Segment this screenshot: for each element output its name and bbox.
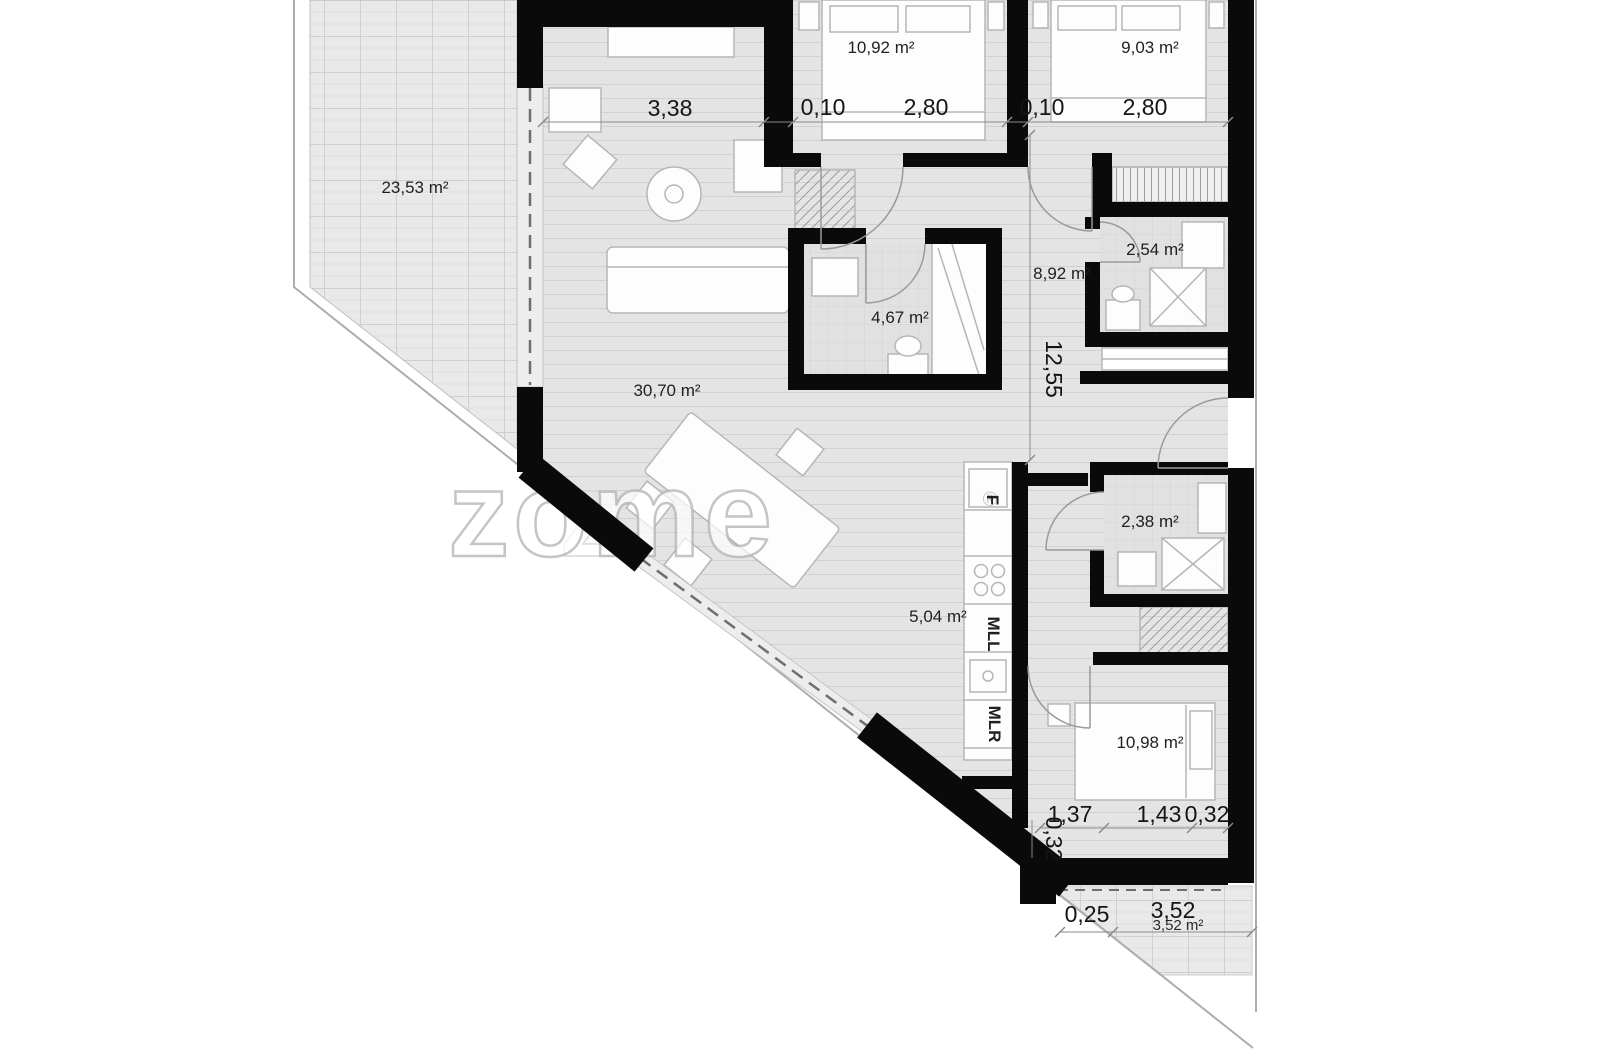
label-bedroom-bottom-area: 10,98 m²	[1116, 733, 1183, 752]
dim-terrace-bottom-a: 0,25	[1065, 901, 1110, 927]
label-hall-area: 8,92 m²	[1033, 264, 1091, 283]
wall	[517, 0, 780, 27]
wall	[1028, 473, 1088, 486]
toilet-bowl	[895, 336, 921, 356]
desk	[549, 88, 601, 132]
dim-bedroom-bottom-side: 0,32	[1041, 817, 1067, 862]
dim-living-width: 3,38	[648, 95, 693, 121]
wall	[1080, 371, 1228, 384]
label-appliance-mll: MLL	[984, 617, 1003, 652]
dim-wall-mid: 0,10	[1020, 94, 1065, 120]
nightstand	[988, 2, 1004, 30]
toilet	[1198, 483, 1226, 533]
dim-terrace-bottom-b: 3,52	[1151, 897, 1196, 923]
watermark-text: zome	[448, 446, 776, 582]
wall	[764, 153, 821, 167]
dim-bedroom-bottom-b: 1,43	[1137, 801, 1182, 827]
wall	[1012, 462, 1028, 828]
wall	[903, 153, 1007, 167]
coffee-table	[647, 167, 701, 221]
sink	[1118, 552, 1156, 586]
wall	[788, 374, 1002, 390]
label-fridge: F	[983, 495, 1002, 505]
wardrobe-bottom	[1140, 607, 1228, 653]
wall	[1085, 332, 1228, 347]
floorplan-page: z zome ®	[0, 0, 1600, 1062]
wall	[1228, 0, 1254, 398]
sofa	[607, 247, 789, 313]
wall	[764, 0, 793, 167]
sink	[812, 258, 858, 296]
wall	[1090, 462, 1104, 492]
bed-left-pillow	[906, 6, 970, 32]
label-terrace-area: 23,53 m²	[381, 178, 448, 197]
wardrobe-top-right-hatch	[1112, 167, 1228, 202]
terrace-bottom-floor	[1047, 886, 1252, 975]
bed-left-pillow	[830, 6, 898, 32]
wall	[788, 228, 804, 390]
nightstand	[1209, 2, 1224, 28]
dim-bedroom-left-width: 2,80	[904, 94, 949, 120]
wall	[1007, 0, 1028, 167]
dim-depth-total: 12,55	[1041, 340, 1067, 398]
label-bathroom-main-area: 4,67 m²	[871, 308, 929, 327]
shower	[932, 240, 988, 386]
bed-right-pillow	[1058, 6, 1116, 30]
dim-bedroom-bottom-c: 0,32	[1185, 801, 1230, 827]
label-bathroom-bottom-area: 2,38 m²	[1121, 512, 1179, 531]
floorplan-drawing: z zome ®	[0, 0, 1600, 1062]
wall	[1056, 858, 1228, 885]
wall	[986, 228, 1002, 390]
wall	[1228, 468, 1254, 883]
label-bedroom-right-area: 9,03 m²	[1121, 38, 1179, 57]
label-appliance-mlr: MLR	[985, 706, 1004, 743]
wall	[1090, 594, 1228, 607]
dim-bedroom-right-width: 2,80	[1123, 94, 1168, 120]
sink	[1182, 222, 1224, 268]
nightstand	[1033, 2, 1048, 28]
dim-wall-left: 0,10	[801, 94, 846, 120]
bedroom-left-closet	[795, 170, 855, 232]
label-bathroom-top-area: 2,54 m²	[1126, 240, 1184, 259]
label-living-area: 30,70 m²	[633, 381, 700, 400]
label-kitchen-area: 5,04 m²	[909, 607, 967, 626]
toilet-bowl	[1112, 286, 1134, 302]
label-bedroom-left-area: 10,92 m²	[847, 38, 914, 57]
tv-sideboard	[608, 27, 734, 57]
kitchen-sink	[970, 660, 1006, 692]
nightstand	[799, 2, 819, 30]
wall	[1105, 202, 1237, 217]
bed-right-pillow	[1122, 6, 1180, 30]
toilet	[1106, 300, 1140, 330]
wall	[1093, 652, 1228, 665]
bed-bottom-pillow	[1190, 711, 1212, 769]
